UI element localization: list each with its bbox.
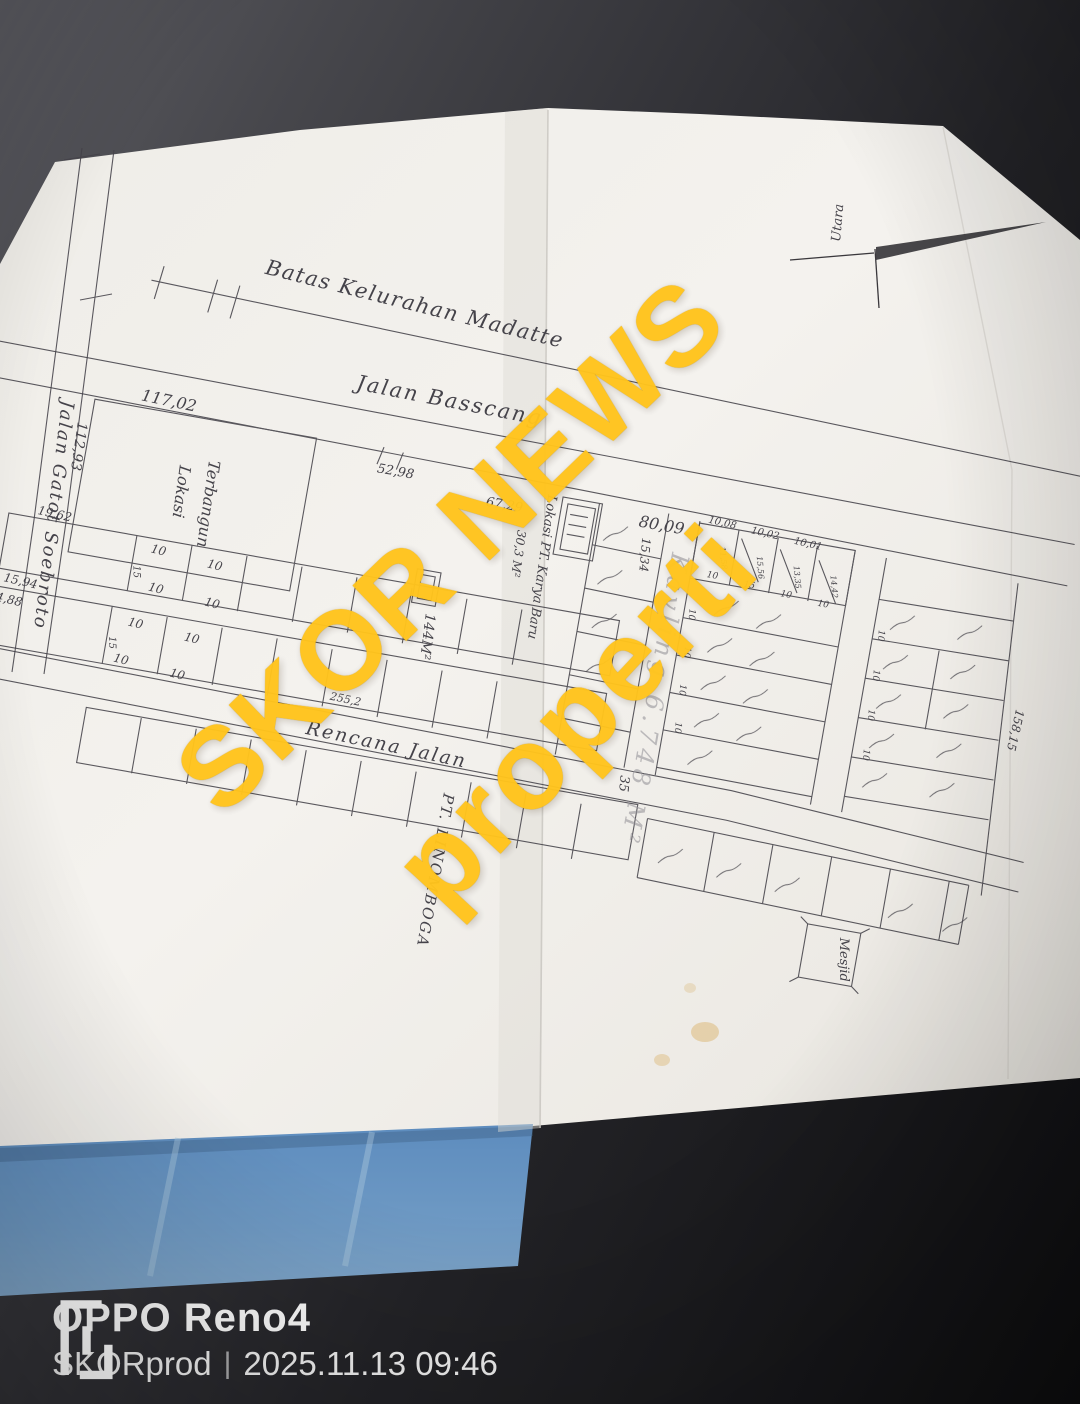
stamp-separator: |: [212, 1347, 244, 1381]
svg-text:10: 10: [672, 722, 683, 735]
oppo-watermark-logo-icon: [52, 1296, 116, 1380]
svg-text:15: 15: [106, 636, 117, 649]
svg-text:10: 10: [875, 630, 886, 643]
svg-text:15: 15: [131, 565, 142, 578]
svg-text:10: 10: [860, 749, 871, 762]
svg-text:10: 10: [865, 709, 876, 722]
stamp-timestamp: 2025.11.13 09:46: [243, 1345, 497, 1383]
stamp-device-name: OPPO Reno4: [52, 1296, 498, 1341]
svg-text:10: 10: [870, 669, 881, 682]
mosque-label: Mesjid: [836, 937, 851, 982]
photo-of-site-plan-document: Batas Kelurahan Madatte Jalan Basscang 5…: [0, 0, 1080, 1404]
svg-text:10: 10: [817, 599, 830, 611]
camera-stamp: OPPO Reno4 SKORprod | 2025.11.13 09:46: [52, 1296, 498, 1383]
